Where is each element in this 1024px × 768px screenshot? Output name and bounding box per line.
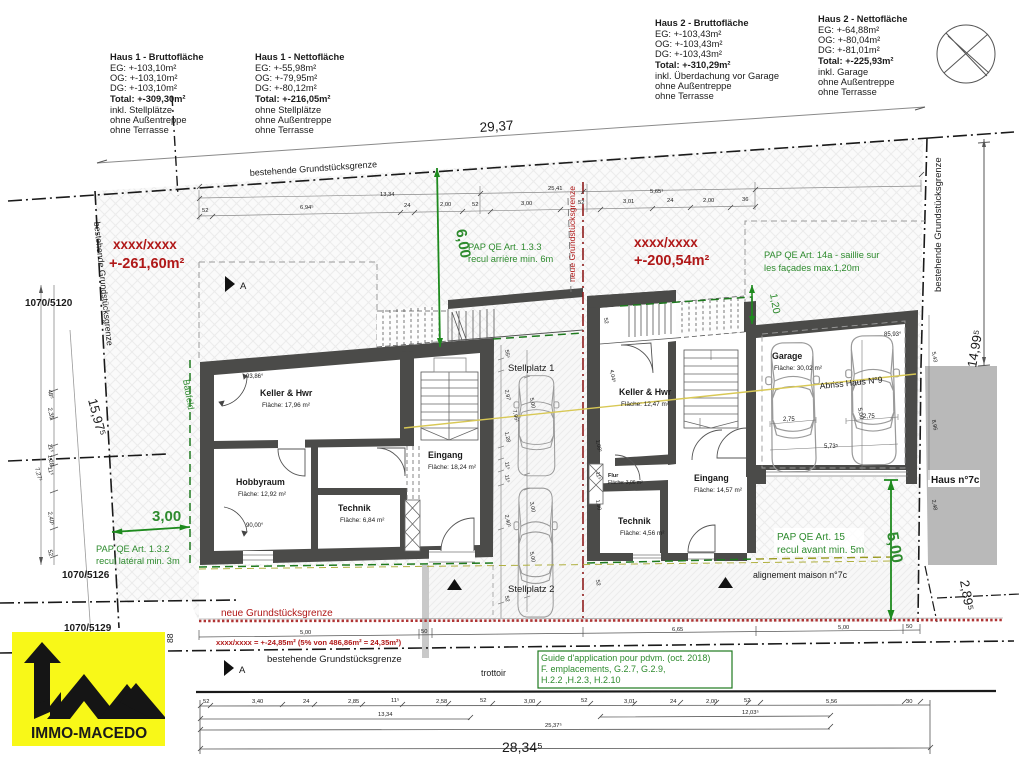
- svg-text:25,41: 25,41: [548, 186, 563, 192]
- svg-text:ohne Außentreppe: ohne Außentreppe: [818, 77, 895, 87]
- svg-text:DG: +-103,10m²: DG: +-103,10m²: [110, 83, 177, 93]
- svg-text:A: A: [240, 281, 247, 292]
- svg-text:88: 88: [165, 633, 175, 643]
- svg-text:90,00°: 90,00°: [246, 523, 264, 529]
- svg-text:52: 52: [503, 595, 510, 602]
- svg-text:3,00: 3,00: [521, 201, 532, 207]
- svg-text:Guide d'application pour pdvm.: Guide d'application pour pdvm. (oct. 201…: [541, 653, 710, 663]
- svg-text:5,00: 5,00: [300, 630, 311, 636]
- svg-text:Fläche: 12,47 m²: Fläche: 12,47 m²: [621, 401, 669, 408]
- svg-text:EG: +-103,10m²: EG: +-103,10m²: [110, 63, 176, 73]
- svg-text:PAP QE Art. 1.3.3: PAP QE Art. 1.3.3: [468, 242, 542, 252]
- svg-text:Hobbyraum: Hobbyraum: [236, 477, 285, 487]
- svg-text:ohne Terrasse: ohne Terrasse: [655, 91, 714, 101]
- svg-text:24: 24: [667, 198, 674, 204]
- svg-text:Haus 1 - Nettofläche: Haus 1 - Nettofläche: [255, 52, 344, 62]
- svg-text:IMMO-MACEDO: IMMO-MACEDO: [31, 725, 147, 742]
- svg-text:Haus n°7c: Haus n°7c: [931, 475, 980, 486]
- svg-text:Fläche: 4,56 m²: Fläche: 4,56 m²: [620, 530, 664, 537]
- svg-text:ohne Stellplätze: ohne Stellplätze: [255, 105, 321, 115]
- svg-text:OG: +-103,43m²: OG: +-103,43m²: [655, 39, 722, 49]
- svg-text:DG: +-103,43m²: DG: +-103,43m²: [655, 49, 722, 59]
- svg-text:EG: +-64,88m²: EG: +-64,88m²: [818, 25, 879, 35]
- svg-text:6,65: 6,65: [672, 627, 683, 633]
- svg-text:H.2.2 ,H.2.3, H.2.10: H.2.2 ,H.2.3, H.2.10: [541, 675, 621, 685]
- svg-text:F. emplacements, G.2.7, G.2.9,: F. emplacements, G.2.7, G.2.9,: [541, 664, 666, 674]
- svg-text:xxxx/xxxx = +-24,85m² (5% von: xxxx/xxxx = +-24,85m² (5% von 486,86m² =…: [216, 638, 402, 647]
- svg-text:52: 52: [578, 200, 584, 206]
- svg-text:50: 50: [906, 624, 912, 630]
- svg-text:recul arrière min. 6m: recul arrière min. 6m: [468, 254, 553, 264]
- svg-text:OG: +-79,95m²: OG: +-79,95m²: [255, 73, 317, 83]
- svg-text:bestehende Grundstücksgrenze: bestehende Grundstücksgrenze: [267, 654, 402, 665]
- svg-text:OG: +-80,04m²: OG: +-80,04m²: [818, 35, 880, 45]
- svg-text:5,65¹: 5,65¹: [650, 189, 663, 195]
- svg-text:Stellplatz 2: Stellplatz 2: [508, 584, 554, 595]
- svg-text:2,58: 2,58: [436, 699, 447, 705]
- svg-text:Total: +-216,05m²: Total: +-216,05m²: [255, 94, 331, 104]
- svg-text:Technik: Technik: [338, 503, 371, 513]
- svg-text:50: 50: [421, 629, 427, 635]
- svg-text:+-261,60m²: +-261,60m²: [109, 256, 185, 272]
- svg-text:13,34: 13,34: [378, 712, 393, 718]
- svg-text:ohne Terrasse: ohne Terrasse: [110, 125, 169, 135]
- svg-text:neue Grundstücksgrenze: neue Grundstücksgrenze: [221, 608, 333, 619]
- svg-text:52: 52: [203, 699, 209, 705]
- svg-text:2,00: 2,00: [703, 198, 714, 204]
- svg-text:Eingang: Eingang: [428, 450, 463, 460]
- svg-text:ohne Außentreppe: ohne Außentreppe: [255, 115, 332, 125]
- svg-text:ohne Terrasse: ohne Terrasse: [818, 87, 877, 97]
- svg-text:2,00: 2,00: [706, 699, 717, 705]
- svg-text:Eingang: Eingang: [694, 473, 729, 483]
- svg-text:11⁵: 11⁵: [503, 474, 511, 483]
- svg-text:PAP QE Art. 1.3.2: PAP QE Art. 1.3.2: [96, 544, 170, 554]
- svg-text:xxxx/xxxx: xxxx/xxxx: [113, 237, 177, 252]
- svg-text:3,00: 3,00: [152, 508, 181, 525]
- svg-text:52: 52: [581, 698, 587, 704]
- svg-text:5,00: 5,00: [838, 625, 849, 631]
- svg-text:EG: +-103,43m²: EG: +-103,43m²: [655, 29, 721, 39]
- svg-text:Stellplatz 1: Stellplatz 1: [508, 363, 554, 374]
- svg-text:DG: +-81,01m²: DG: +-81,01m²: [818, 45, 880, 55]
- svg-text:A: A: [239, 665, 246, 676]
- svg-text:55⁵: 55⁵: [503, 349, 511, 358]
- svg-text:11⁵: 11⁵: [503, 461, 511, 470]
- svg-text:alignement maison n°7c: alignement maison n°7c: [753, 570, 848, 580]
- svg-text:Fläche: 14,57 m²: Fläche: 14,57 m²: [694, 487, 742, 494]
- svg-text:Keller & Hwr: Keller & Hwr: [260, 388, 313, 398]
- svg-text:2,75: 2,75: [863, 414, 875, 420]
- svg-text:Haus 2 - Bruttofläche: Haus 2 - Bruttofläche: [655, 18, 749, 28]
- svg-text:5,56: 5,56: [826, 699, 837, 705]
- svg-text:11⁵: 11⁵: [391, 697, 400, 704]
- svg-text:ohne Terrasse: ohne Terrasse: [255, 125, 314, 135]
- svg-text:5,73⁵: 5,73⁵: [824, 443, 839, 450]
- svg-text:52: 52: [472, 202, 478, 208]
- svg-text:52: 52: [480, 698, 486, 704]
- svg-text:DG: +-80,12m²: DG: +-80,12m²: [255, 83, 317, 93]
- svg-text:24: 24: [404, 203, 411, 209]
- svg-text:29,37: 29,37: [479, 118, 514, 135]
- svg-text:PAP QE Art. 14a - saillie sur: PAP QE Art. 14a - saillie sur: [764, 250, 879, 260]
- svg-text:inkl. Garage: inkl. Garage: [818, 67, 868, 77]
- svg-text:Technik: Technik: [618, 516, 651, 526]
- svg-text:inkl. Stellplätze: inkl. Stellplätze: [110, 105, 172, 115]
- svg-text:1070/5126: 1070/5126: [62, 570, 110, 581]
- svg-text:ohne Außentreppe: ohne Außentreppe: [655, 81, 732, 91]
- svg-text:52: 52: [202, 208, 208, 214]
- svg-text:Keller & Hwr: Keller & Hwr: [619, 387, 672, 397]
- svg-text:93,86°: 93,86°: [246, 374, 264, 380]
- svg-text:3,40: 3,40: [252, 699, 263, 705]
- svg-text:12,03⁵: 12,03⁵: [742, 709, 760, 716]
- svg-text:EG: +-55,98m²: EG: +-55,98m²: [255, 63, 316, 73]
- svg-text:ohne Außentreppe: ohne Außentreppe: [110, 115, 187, 125]
- svg-text:24: 24: [303, 699, 310, 705]
- svg-text:trottoir: trottoir: [481, 668, 506, 678]
- svg-text:2,75: 2,75: [783, 417, 795, 423]
- svg-text:13,34: 13,34: [380, 192, 395, 198]
- svg-text:25,37⁵: 25,37⁵: [545, 722, 563, 729]
- svg-text:Fläche: 12,92 m²: Fläche: 12,92 m²: [238, 491, 286, 498]
- svg-text:Fläche: 17,96 m²: Fläche: 17,96 m²: [262, 402, 310, 409]
- svg-text:Haus 1 - Bruttofläche: Haus 1 - Bruttofläche: [110, 52, 204, 62]
- svg-text:bestehende Grundstücksgrenze: bestehende Grundstücksgrenze: [933, 157, 944, 292]
- svg-text:Total: +-225,93m²: Total: +-225,93m²: [818, 56, 894, 66]
- svg-text:Fläche: 6,84 m²: Fläche: 6,84 m²: [340, 517, 384, 524]
- svg-text:Total: +-310,29m²: Total: +-310,29m²: [655, 60, 731, 70]
- svg-text:30: 30: [906, 699, 912, 705]
- svg-text:Fläche: 3,06 m²: Fläche: 3,06 m²: [608, 480, 643, 486]
- svg-text:3,00: 3,00: [524, 699, 535, 705]
- svg-text:2,00: 2,00: [440, 202, 451, 208]
- svg-text:11⁵: 11⁵: [594, 471, 602, 480]
- svg-text:inkl. Überdachung vor Garage: inkl. Überdachung vor Garage: [655, 71, 779, 81]
- svg-text:1070/5120: 1070/5120: [25, 298, 73, 309]
- svg-text:recul latéral min. 3m: recul latéral min. 3m: [96, 556, 180, 566]
- svg-text:Flur: Flur: [608, 473, 619, 479]
- svg-text:28,34⁵: 28,34⁵: [502, 739, 543, 755]
- svg-text:52: 52: [594, 579, 601, 586]
- svg-text:Total: +-309,30m²: Total: +-309,30m²: [110, 94, 186, 104]
- svg-text:Fläche: 30,02 m²: Fläche: 30,02 m²: [774, 365, 822, 372]
- svg-text:recul avant min. 5m: recul avant min. 5m: [777, 545, 864, 556]
- svg-text:6,94⁵: 6,94⁵: [300, 204, 314, 211]
- svg-text:+-200,54m²: +-200,54m²: [634, 253, 710, 269]
- svg-text:52: 52: [602, 317, 609, 324]
- svg-text:36: 36: [742, 197, 748, 203]
- svg-text:xxxx/xxxx: xxxx/xxxx: [634, 235, 698, 250]
- svg-text:2,85: 2,85: [348, 699, 359, 705]
- svg-text:les façades max.1,20m: les façades max.1,20m: [764, 263, 860, 273]
- svg-text:Haus 2 - Nettofläche: Haus 2 - Nettofläche: [818, 14, 907, 24]
- svg-text:OG: +-103,10m²: OG: +-103,10m²: [110, 73, 177, 83]
- svg-text:24: 24: [670, 699, 677, 705]
- svg-text:PAP QE Art. 15: PAP QE Art. 15: [777, 532, 845, 543]
- svg-text:3,01: 3,01: [623, 199, 634, 205]
- svg-text:85,93°: 85,93°: [884, 332, 902, 338]
- svg-text:Garage: Garage: [772, 351, 802, 361]
- svg-text:Fläche: 18,24 m²: Fläche: 18,24 m²: [428, 464, 476, 471]
